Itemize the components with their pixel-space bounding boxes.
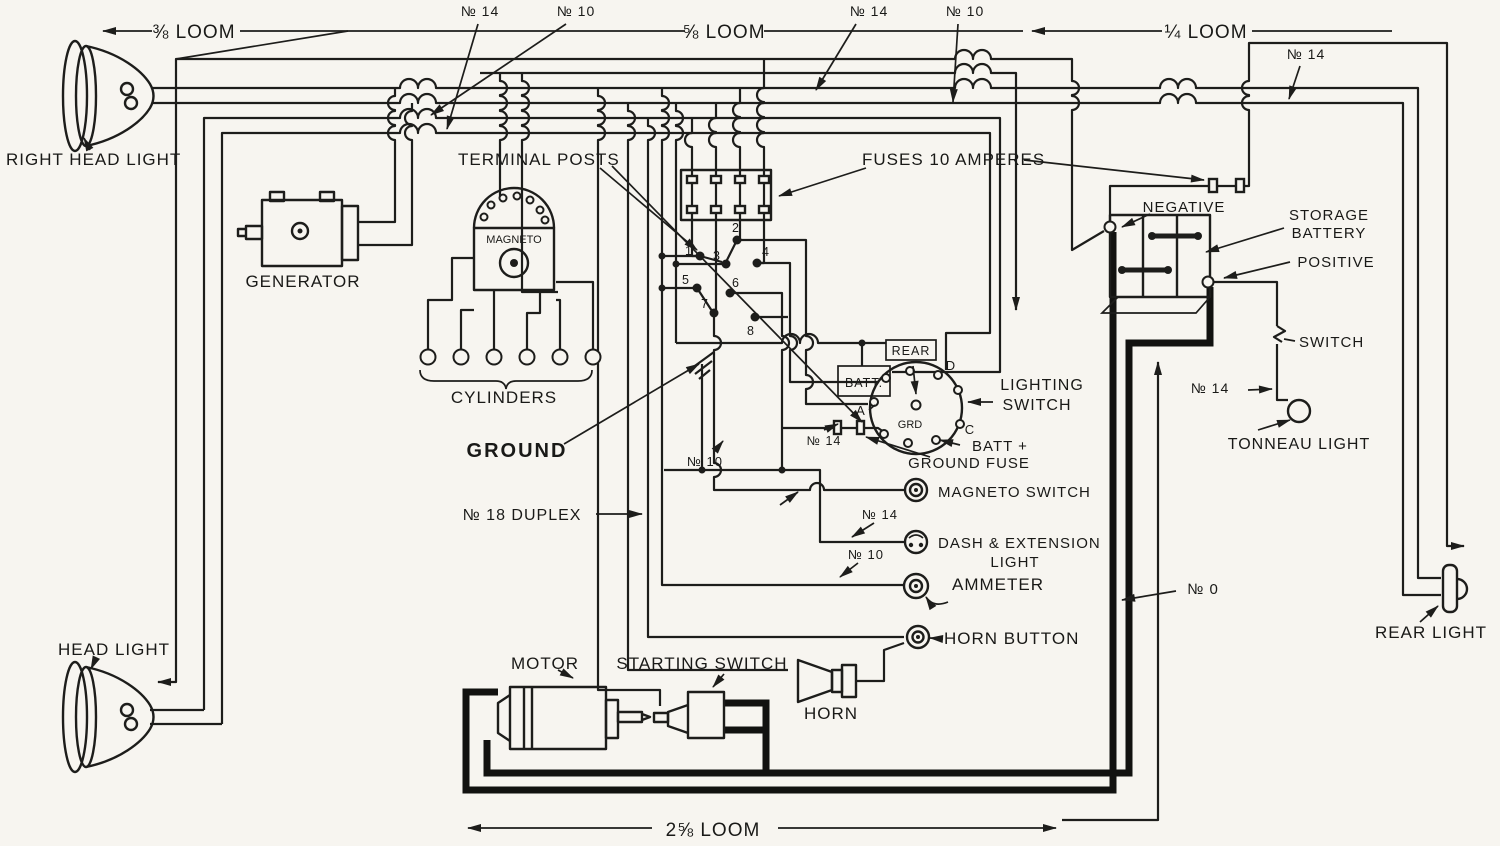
terminal-c-label: C <box>965 422 975 437</box>
ground-fuse-label: GROUND FUSE <box>908 455 1030 472</box>
rear-light-symbol <box>1443 565 1467 612</box>
gauge-14-label: № 14 <box>461 3 499 19</box>
generator-symbol <box>238 192 358 266</box>
ammeter-label: AMMETER <box>952 575 1044 594</box>
grd-terminal-label: GRD <box>898 419 923 431</box>
gauge-14-label: № 14 <box>1287 46 1325 62</box>
headlight-symbol <box>63 662 154 772</box>
lighting-switch-label-1: LIGHTING <box>1000 377 1084 394</box>
leader-arrows <box>84 24 1438 687</box>
post-number: 3 <box>713 249 721 263</box>
post-number: 5 <box>682 273 690 287</box>
starting-switch-label: STARTING SWITCH <box>616 654 787 673</box>
ground-label: GROUND <box>467 440 568 462</box>
gauge-10-label: № 10 <box>848 547 884 562</box>
loom-38-label: ⅜ LOOM <box>152 22 235 43</box>
positive-label: POSITIVE <box>1297 254 1374 271</box>
post-number: 1 <box>685 244 693 258</box>
labels: ⅜ LOOM № 14 № 10 ⅝ LOOM № 14 № 10 ¼ LOOM… <box>6 3 1487 841</box>
rear-light-label: REAR LIGHT <box>1375 623 1487 642</box>
fuses-label: FUSES 10 AMPERES <box>862 150 1045 169</box>
gauge-10-label: № 10 <box>557 3 595 19</box>
tonneau-light-label: TONNEAU LIGHT <box>1228 436 1371 453</box>
magneto-wire-top <box>500 73 507 196</box>
motor-label: MOTOR <box>511 654 579 673</box>
gauge-14-label: № 14 <box>850 3 888 19</box>
post-number: 4 <box>762 245 770 259</box>
gauge-14-label: № 14 <box>1191 380 1229 396</box>
generator-label: GENERATOR <box>245 272 360 291</box>
cylinders-symbol <box>420 350 601 390</box>
batt-plus-label: BATT + <box>972 438 1028 455</box>
cylinders-brace <box>420 370 592 389</box>
batt-terminal-label: BATT. <box>845 376 883 390</box>
wiring-diagram: ⅜ LOOM № 14 № 10 ⅝ LOOM № 14 № 10 ¼ LOOM… <box>0 0 1500 846</box>
gauge-10-label: № 10 <box>946 3 984 19</box>
bulb-icon <box>121 83 133 95</box>
wire-battery-fuse-rear <box>1110 43 1464 546</box>
bulb-icon <box>121 704 133 716</box>
battery-label: BATTERY <box>1292 225 1367 242</box>
cylinders-label: CYLINDERS <box>451 388 557 407</box>
ammeter-symbol <box>904 574 928 598</box>
battery-switch-label: SWITCH <box>1299 334 1364 351</box>
negative-post <box>1105 222 1116 233</box>
junction-dot <box>659 253 666 260</box>
cable-starting-switch <box>724 703 766 773</box>
horn-button-symbol <box>907 626 929 648</box>
dimension-lines <box>103 31 1392 828</box>
right-headlight-symbol <box>63 41 154 151</box>
starting-switch-symbol <box>654 692 724 738</box>
horn-label: HORN <box>804 704 858 723</box>
battery-tray <box>1102 297 1210 313</box>
fuse-wire-2-top <box>709 103 716 176</box>
junction-dot <box>859 340 866 347</box>
lighting-switch-label-2: SWITCH <box>1002 397 1071 414</box>
bulb-icon <box>125 97 137 109</box>
positive-post <box>1203 277 1214 288</box>
wire-horn-to-button <box>856 643 904 681</box>
bulb-icon <box>125 718 137 730</box>
wire-88-rear-light <box>152 79 1441 578</box>
loom-258-label: 2⅝ LOOM <box>666 820 761 841</box>
junction-dot <box>779 467 786 474</box>
tonneau-light-symbol <box>1288 400 1310 422</box>
cylinder-wire-2 <box>461 310 474 349</box>
gauge-0-label: № 0 <box>1187 581 1219 598</box>
storage-label: STORAGE <box>1289 207 1369 224</box>
loom-14-label: ¼ LOOM <box>1164 22 1247 43</box>
wire-dash-light <box>664 470 905 542</box>
dash-extension-label-1: DASH & EXTENSION <box>938 535 1101 552</box>
junction-dot <box>673 261 680 268</box>
wire-rear-feed-vert <box>676 103 683 343</box>
gauge-10-label: № 10 <box>687 454 723 469</box>
dash-extension-label-2: LIGHT <box>990 554 1039 571</box>
wire-switch-topleft <box>757 263 878 382</box>
fuse-box-symbol <box>681 170 771 220</box>
cylinder-wire-5 <box>556 300 560 349</box>
loom-58-label: ⅝ LOOM <box>682 22 765 43</box>
fuse-wire-1-top <box>685 118 692 176</box>
dash-extension-light-symbol <box>905 531 927 553</box>
generator-wire-1 <box>358 88 395 222</box>
terminal-d-label: D <box>946 358 956 373</box>
wires <box>150 43 1464 724</box>
wire-73 <box>480 64 1016 310</box>
junction-dot <box>659 285 666 292</box>
rear-terminal-label: REAR <box>892 344 931 358</box>
negative-label: NEGATIVE <box>1143 199 1226 216</box>
gauge-14-label: № 14 <box>807 434 842 448</box>
post-number: 7 <box>701 297 709 311</box>
post-number: 6 <box>732 276 740 290</box>
magneto-switch-label: MAGNETO SWITCH <box>938 484 1091 501</box>
cylinder-wire-4 <box>527 290 540 349</box>
terminal-a-label: A <box>856 403 866 418</box>
magneto-switch-symbol <box>905 479 927 501</box>
cylinder-wire-1 <box>428 258 474 349</box>
head-light-label: HEAD LIGHT <box>58 640 170 659</box>
wiring-diagram-page: ⅜ LOOM № 14 № 10 ⅝ LOOM № 14 № 10 ¼ LOOM… <box>0 0 1500 846</box>
post-number: 8 <box>747 324 755 338</box>
horn-button-label: HORN BUTTON <box>944 629 1079 648</box>
post-number: 2 <box>732 221 740 235</box>
horn-symbol <box>798 660 856 702</box>
right-head-light-label: RIGHT HEAD LIGHT <box>6 150 181 169</box>
fuse-icon <box>687 176 769 213</box>
terminal-posts-label: TERMINAL POSTS <box>458 150 620 169</box>
motor-symbol <box>498 687 650 749</box>
magneto-label: MAGNETO <box>486 234 542 246</box>
cylinder-wire-6 <box>556 282 593 349</box>
gauge-14-label: № 14 <box>862 507 898 522</box>
duplex-label: № 18 DUPLEX <box>463 507 582 524</box>
